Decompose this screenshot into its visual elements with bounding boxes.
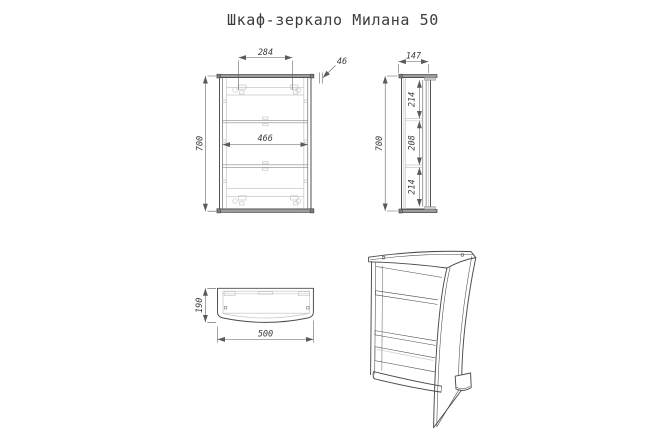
dim-side-overall-height: 700: [375, 136, 385, 151]
dim-side-section-bottom: 214: [407, 179, 417, 194]
dim-side-overall-depth: 147: [406, 52, 422, 62]
top-view: 190 500: [195, 288, 313, 343]
side-top-panel: [399, 75, 437, 78]
dim-top-overall-width: 500: [258, 329, 273, 339]
isometric-view: [369, 251, 476, 427]
side-bottom-panel: [399, 209, 437, 212]
drawing-canvas: 700 284 46 466: [0, 0, 666, 444]
dim-front-overall-height: 700: [195, 136, 205, 151]
dim-front-hinge-spacing: 284: [258, 48, 273, 58]
front-bottom-panel: [217, 209, 314, 212]
dim-side-section-middle: 208: [407, 135, 417, 150]
front-top-panel: [217, 75, 314, 78]
iso-plinth: [373, 372, 441, 393]
front-view: 700 284 46 466: [195, 48, 347, 213]
dim-front-inner-width: 466: [258, 134, 273, 144]
dim-side-section-top: 214: [407, 92, 417, 107]
dim-top-overall-depth: 190: [195, 298, 205, 313]
dim-front-top-panel-thickness: 46: [337, 57, 347, 67]
iso-top-panel: [369, 251, 476, 268]
side-view: 147 700 214 208 214: [375, 52, 437, 213]
top-outline: [218, 288, 314, 322]
technical-drawing-sheet: Шкаф-зеркало Милана 50: [0, 0, 666, 444]
